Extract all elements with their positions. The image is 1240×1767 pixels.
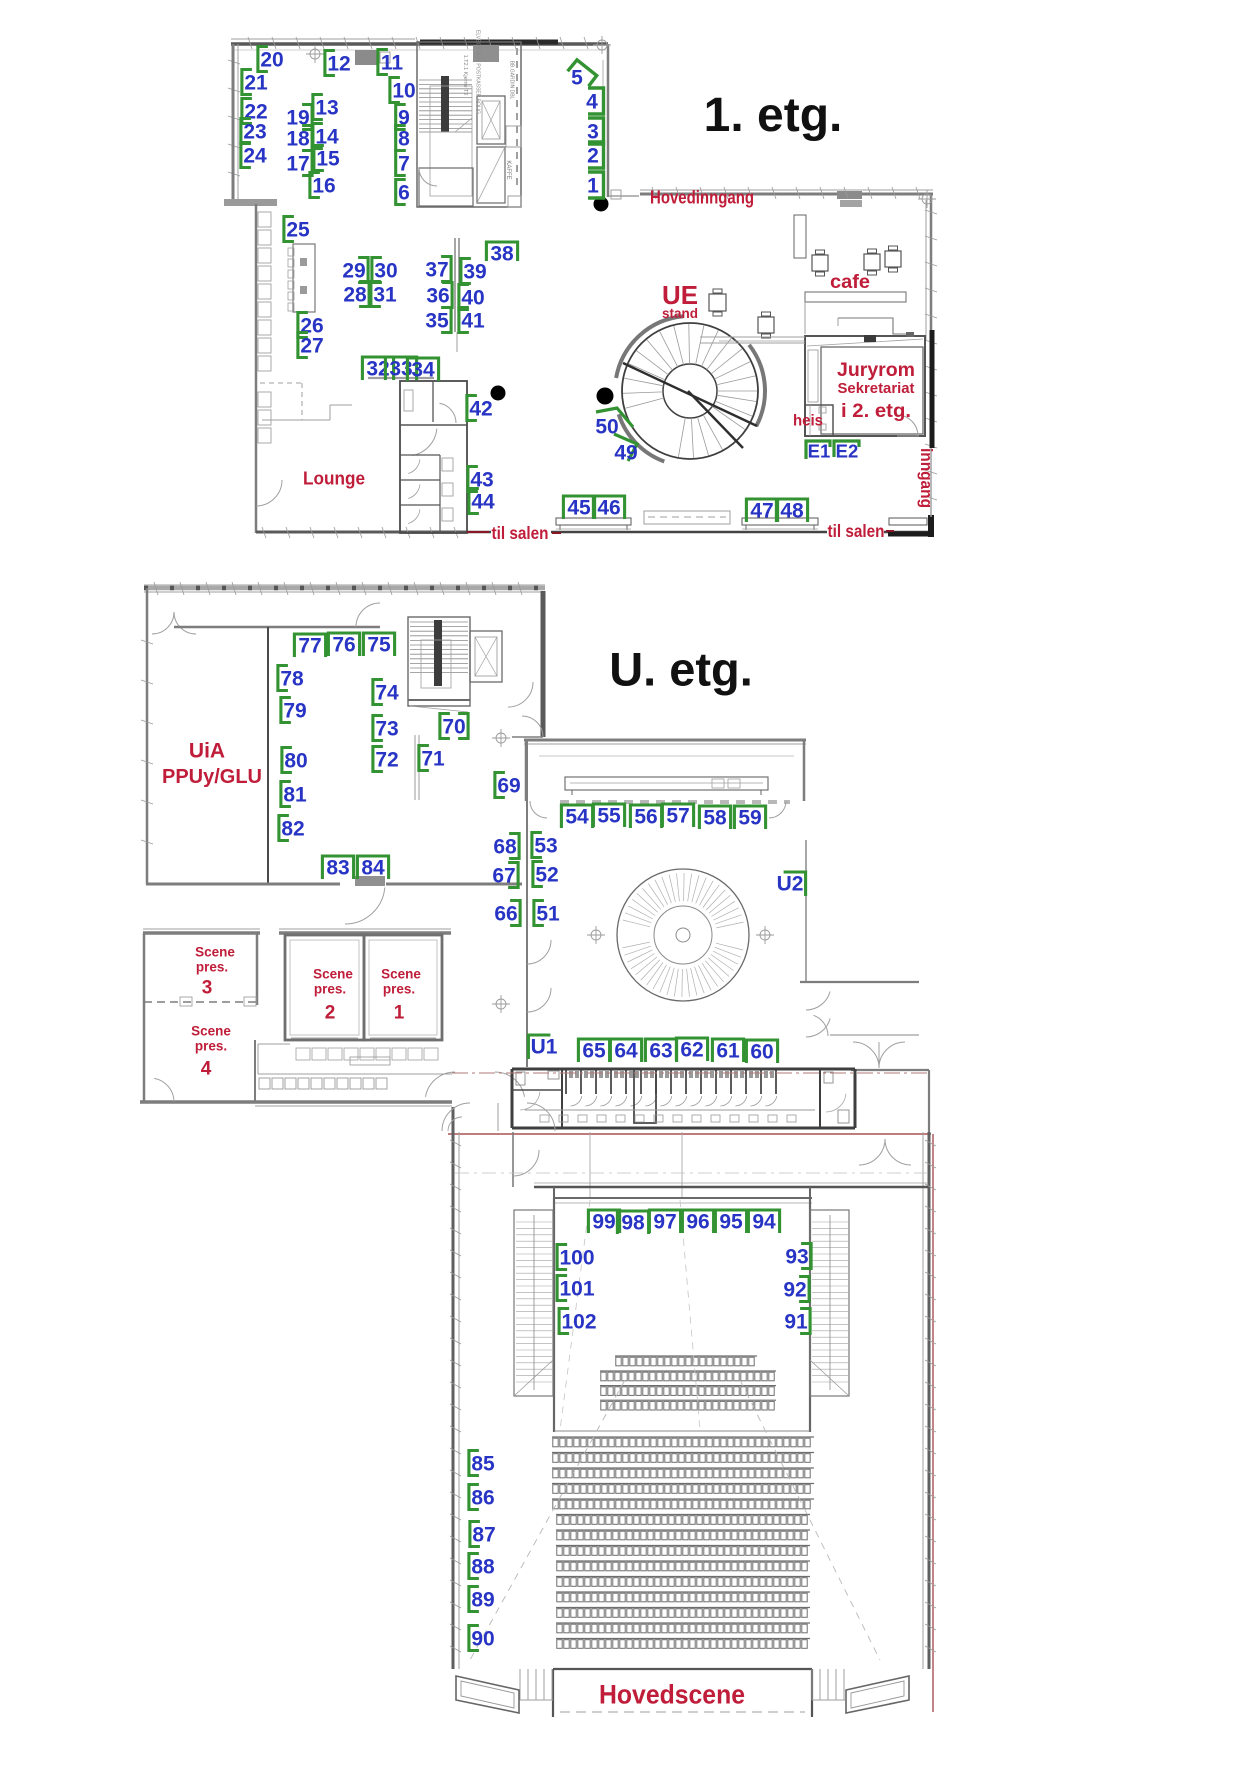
svg-text:88: 88 bbox=[471, 1555, 495, 1578]
svg-text:80: 80 bbox=[284, 749, 307, 772]
svg-text:Lounge: Lounge bbox=[303, 467, 365, 488]
svg-text:21: 21 bbox=[244, 71, 268, 94]
svg-text:51: 51 bbox=[536, 902, 560, 925]
svg-text:101: 101 bbox=[559, 1277, 594, 1300]
svg-text:99: 99 bbox=[592, 1210, 615, 1233]
svg-text:KAFFE: KAFFE bbox=[505, 160, 511, 179]
svg-text:34: 34 bbox=[411, 358, 435, 381]
svg-text:35: 35 bbox=[425, 309, 449, 332]
svg-text:54: 54 bbox=[565, 805, 589, 828]
svg-text:58: 58 bbox=[703, 806, 727, 829]
svg-text:Hovedinngang: Hovedinngang bbox=[650, 187, 754, 207]
svg-text:Juryrom: Juryrom bbox=[837, 359, 915, 381]
svg-text:24: 24 bbox=[243, 144, 267, 167]
svg-text:36: 36 bbox=[426, 284, 449, 307]
svg-text:39: 39 bbox=[463, 260, 486, 283]
svg-text:40: 40 bbox=[461, 286, 484, 309]
svg-text:til salen: til salen bbox=[828, 521, 885, 541]
svg-text:2: 2 bbox=[587, 144, 599, 167]
svg-text:1: 1 bbox=[394, 1003, 405, 1024]
svg-text:3: 3 bbox=[587, 120, 599, 143]
svg-text:25: 25 bbox=[286, 218, 310, 241]
svg-text:Scene: Scene bbox=[195, 945, 235, 960]
svg-text:Hovedscene: Hovedscene bbox=[599, 1679, 745, 1709]
svg-text:98: 98 bbox=[621, 1211, 645, 1234]
svg-text:pres.: pres. bbox=[195, 1039, 227, 1054]
svg-text:U2: U2 bbox=[777, 872, 804, 895]
svg-text:17: 17 bbox=[286, 152, 309, 175]
svg-text:68: 68 bbox=[493, 835, 517, 858]
svg-text:4: 4 bbox=[201, 1059, 212, 1080]
svg-text:til salen: til salen bbox=[492, 523, 549, 543]
svg-text:E2: E2 bbox=[836, 440, 859, 461]
svg-text:81: 81 bbox=[283, 783, 307, 806]
svg-text:76: 76 bbox=[332, 633, 355, 656]
svg-text:pres.: pres. bbox=[196, 960, 228, 975]
svg-text:62: 62 bbox=[680, 1038, 703, 1061]
svg-text:E1: E1 bbox=[808, 440, 831, 461]
svg-text:11: 11 bbox=[381, 51, 404, 74]
svg-text:10: 10 bbox=[392, 79, 415, 102]
svg-text:ELVEGATA 69 POSTKASSER BOLIG: ELVEGATA 69 POSTKASSER BOLIG bbox=[474, 30, 480, 114]
svg-text:73: 73 bbox=[375, 717, 398, 740]
svg-text:1.T2.1 Kjerne T2: 1.T2.1 Kjerne T2 bbox=[462, 55, 468, 96]
svg-text:20: 20 bbox=[260, 48, 283, 71]
svg-text:27: 27 bbox=[300, 334, 323, 357]
svg-text:i 2. etg.: i 2. etg. bbox=[841, 400, 911, 422]
svg-text:59: 59 bbox=[738, 806, 761, 829]
svg-text:71: 71 bbox=[421, 747, 445, 770]
svg-text:1: 1 bbox=[587, 174, 599, 197]
svg-text:6: 6 bbox=[398, 181, 410, 204]
svg-text:1. etg.: 1. etg. bbox=[704, 89, 843, 142]
svg-text:90: 90 bbox=[471, 1627, 494, 1650]
svg-text:stand: stand bbox=[662, 305, 698, 321]
svg-text:96: 96 bbox=[686, 1210, 709, 1233]
svg-text:78: 78 bbox=[280, 667, 304, 690]
svg-text:45: 45 bbox=[567, 496, 591, 519]
svg-text:84: 84 bbox=[361, 856, 385, 879]
svg-text:28: 28 bbox=[343, 283, 367, 306]
svg-text:92: 92 bbox=[783, 1278, 806, 1301]
svg-text:74: 74 bbox=[375, 681, 399, 704]
svg-text:inngang: inngang bbox=[917, 448, 936, 508]
svg-text:pres.: pres. bbox=[314, 982, 346, 997]
svg-text:38: 38 bbox=[490, 242, 514, 265]
svg-text:16: 16 bbox=[312, 174, 335, 197]
svg-text:85: 85 bbox=[471, 1452, 495, 1475]
svg-text:61: 61 bbox=[716, 1039, 740, 1062]
svg-text:42: 42 bbox=[469, 397, 492, 420]
svg-text:69: 69 bbox=[497, 774, 520, 797]
svg-text:33: 33 bbox=[389, 357, 412, 380]
svg-text:55: 55 bbox=[597, 804, 621, 827]
svg-text:U. etg.: U. etg. bbox=[609, 642, 753, 695]
svg-text:BB.GARDIN DBL: BB.GARDIN DBL bbox=[508, 61, 514, 100]
svg-text:12: 12 bbox=[327, 52, 350, 75]
svg-text:13: 13 bbox=[315, 96, 338, 119]
svg-text:heis: heis bbox=[793, 412, 823, 429]
svg-text:2: 2 bbox=[325, 1003, 336, 1024]
svg-text:UiA: UiA bbox=[189, 739, 225, 762]
svg-text:30: 30 bbox=[374, 259, 397, 282]
svg-text:87: 87 bbox=[472, 1523, 495, 1546]
svg-text:Scene: Scene bbox=[313, 967, 353, 982]
svg-text:93: 93 bbox=[785, 1245, 808, 1268]
svg-text:94: 94 bbox=[752, 1210, 776, 1233]
svg-text:64: 64 bbox=[614, 1039, 638, 1062]
svg-text:65: 65 bbox=[582, 1039, 606, 1062]
svg-text:37: 37 bbox=[425, 258, 448, 281]
svg-text:82: 82 bbox=[281, 817, 304, 840]
svg-text:66: 66 bbox=[494, 902, 517, 925]
svg-text:3: 3 bbox=[202, 978, 213, 999]
svg-text:72: 72 bbox=[375, 748, 398, 771]
svg-text:Sekretariat: Sekretariat bbox=[838, 381, 915, 397]
svg-text:7: 7 bbox=[398, 152, 410, 175]
svg-text:86: 86 bbox=[471, 1486, 494, 1509]
svg-text:18: 18 bbox=[286, 127, 310, 150]
svg-text:U1: U1 bbox=[531, 1035, 558, 1058]
svg-text:4: 4 bbox=[586, 90, 598, 113]
svg-text:PPUy/GLU: PPUy/GLU bbox=[162, 766, 262, 788]
svg-text:97: 97 bbox=[653, 1210, 676, 1233]
svg-text:44: 44 bbox=[471, 490, 495, 513]
svg-text:5: 5 bbox=[571, 66, 583, 89]
svg-text:77: 77 bbox=[298, 634, 321, 657]
svg-text:49: 49 bbox=[614, 441, 637, 464]
svg-text:Scene: Scene bbox=[191, 1024, 231, 1039]
svg-text:31: 31 bbox=[373, 283, 397, 306]
svg-text:48: 48 bbox=[780, 499, 804, 522]
svg-text:91: 91 bbox=[784, 1310, 808, 1333]
svg-text:52: 52 bbox=[535, 863, 558, 886]
svg-text:79: 79 bbox=[283, 699, 306, 722]
svg-text:41: 41 bbox=[461, 309, 485, 332]
svg-text:102: 102 bbox=[561, 1310, 596, 1333]
svg-text:83: 83 bbox=[326, 856, 349, 879]
svg-text:57: 57 bbox=[666, 804, 689, 827]
svg-text:cafe: cafe bbox=[830, 271, 870, 293]
svg-text:47: 47 bbox=[750, 499, 773, 522]
svg-text:75: 75 bbox=[367, 633, 391, 656]
svg-text:23: 23 bbox=[243, 120, 266, 143]
svg-text:70: 70 bbox=[442, 715, 465, 738]
svg-text:pres.: pres. bbox=[383, 982, 415, 997]
svg-text:67: 67 bbox=[492, 864, 515, 887]
svg-text:56: 56 bbox=[634, 805, 657, 828]
svg-text:95: 95 bbox=[719, 1210, 743, 1233]
svg-text:100: 100 bbox=[559, 1246, 594, 1269]
svg-text:89: 89 bbox=[471, 1588, 494, 1611]
svg-text:63: 63 bbox=[649, 1039, 672, 1062]
svg-text:29: 29 bbox=[342, 259, 365, 282]
svg-text:60: 60 bbox=[750, 1040, 773, 1063]
svg-text:46: 46 bbox=[597, 496, 620, 519]
svg-text:Scene: Scene bbox=[381, 967, 421, 982]
svg-text:53: 53 bbox=[534, 834, 557, 857]
svg-text:15: 15 bbox=[316, 147, 340, 170]
svg-text:8: 8 bbox=[398, 127, 410, 150]
